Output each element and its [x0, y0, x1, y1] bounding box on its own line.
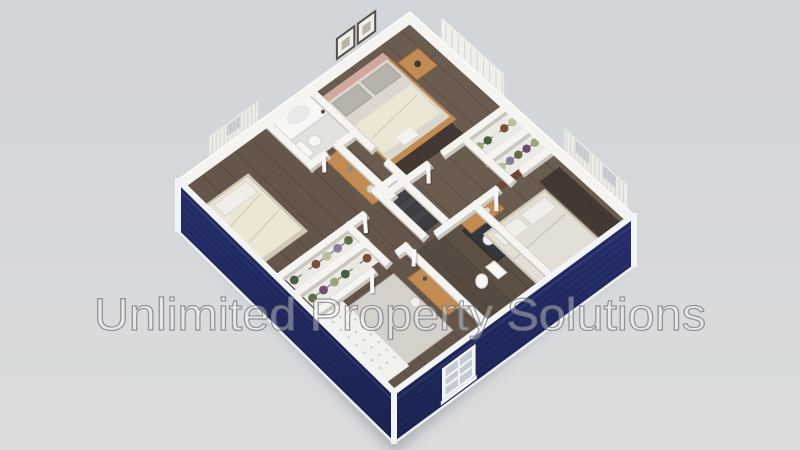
lace-dot — [379, 367, 381, 369]
clothes-item — [301, 268, 310, 277]
lace-dot — [363, 351, 365, 353]
decor-lamp — [347, 166, 353, 172]
watermark-text: Unlimited Property Solutions — [94, 289, 706, 340]
clothes-item — [492, 130, 500, 138]
clothes-item — [484, 136, 492, 144]
clothes-item — [514, 151, 522, 159]
floorplan-render: Unlimited Property Solutions — [0, 0, 800, 450]
lace-dot — [371, 359, 373, 361]
screenshot-canvas: Unlimited Property Solutions — [0, 0, 800, 450]
door-open — [324, 155, 325, 172]
clothes-item — [522, 144, 530, 152]
clothes-item — [500, 124, 508, 132]
lace-dot — [393, 356, 395, 358]
corner-post — [391, 390, 397, 444]
clothes-item — [322, 252, 331, 261]
lace-dot — [386, 361, 388, 363]
door-open — [365, 214, 366, 233]
toilet — [308, 135, 321, 146]
clothes-item — [330, 278, 339, 287]
door-open — [414, 249, 415, 266]
clothes-item — [290, 276, 299, 285]
clothes-item — [333, 244, 342, 253]
shower-fixture — [321, 110, 325, 114]
clothes-item — [506, 157, 514, 165]
lace-dot — [385, 349, 387, 351]
table-lamp — [414, 60, 421, 67]
lace-dot — [370, 346, 372, 348]
lace-dot — [355, 344, 357, 346]
clothes-item — [363, 254, 372, 263]
desk-decor — [423, 276, 427, 280]
toilet — [476, 274, 488, 288]
clothes-item — [341, 270, 350, 279]
lace-dot — [377, 341, 379, 343]
clothes-item — [312, 260, 321, 269]
corner-post — [631, 213, 637, 267]
clothes-item — [352, 262, 361, 271]
lace-dot — [378, 354, 380, 356]
clothes-item — [344, 236, 353, 245]
